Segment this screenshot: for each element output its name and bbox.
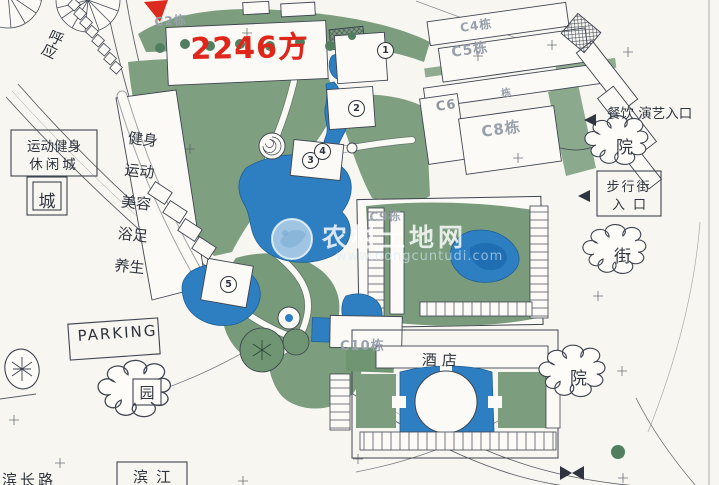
culvert-mark xyxy=(560,466,584,480)
hotel-round-building xyxy=(415,371,477,433)
street-bubble-label: 街 xyxy=(614,242,631,267)
cheng-bubble-label: 城 xyxy=(33,187,61,212)
circle-marker-1: 1 xyxy=(377,42,394,59)
yard-bubble-bottom-label: 院 xyxy=(570,364,587,389)
hotel-label: 酒店 xyxy=(422,349,462,371)
spa-row: 美容 xyxy=(120,191,166,216)
circle-marker-2: 2 xyxy=(348,100,365,117)
fan-plaza xyxy=(0,0,120,32)
road-partial-label: 滨长路 xyxy=(2,469,56,485)
plan-drawing xyxy=(0,0,719,485)
sport-box-line1: 运动健身 xyxy=(15,135,93,155)
spa-row: 养生 xyxy=(113,254,159,279)
yard-bubble-top-label: 院 xyxy=(616,133,633,158)
spa-row: 浴足 xyxy=(117,222,163,247)
spa-row: 健身 xyxy=(127,127,173,152)
area-label: 2246方 xyxy=(190,22,309,68)
circle-marker-5: 5 xyxy=(220,276,237,293)
dining-entrance-label: 餐饮 演艺入口 xyxy=(607,102,692,122)
entrance-arrow xyxy=(578,190,590,202)
walk-street-line1: 步行街 xyxy=(600,176,658,195)
sport-box-line2: 休闲城 xyxy=(15,153,93,173)
building-label-c10: C10栋 xyxy=(340,335,385,354)
garden-bubble-label: 园 xyxy=(133,382,161,403)
walkway-node xyxy=(347,143,357,153)
building-label-c6: C6 xyxy=(435,97,457,115)
site-plan-scan: C2栋 2246方 C4栋 C5栋 栋 C6 C8栋 C9栋 C10栋 呼应 运… xyxy=(0,0,719,485)
building-label-c2: C2栋 xyxy=(154,11,187,30)
spa-row: 运动 xyxy=(123,159,169,184)
building-label-c9: C9栋 xyxy=(369,207,402,225)
building-label-dong: 栋 xyxy=(500,83,513,99)
walk-street-line2: 入口 xyxy=(600,194,658,213)
riverside-label: 滨江 xyxy=(117,466,187,485)
circle-marker-4: 4 xyxy=(314,143,331,160)
